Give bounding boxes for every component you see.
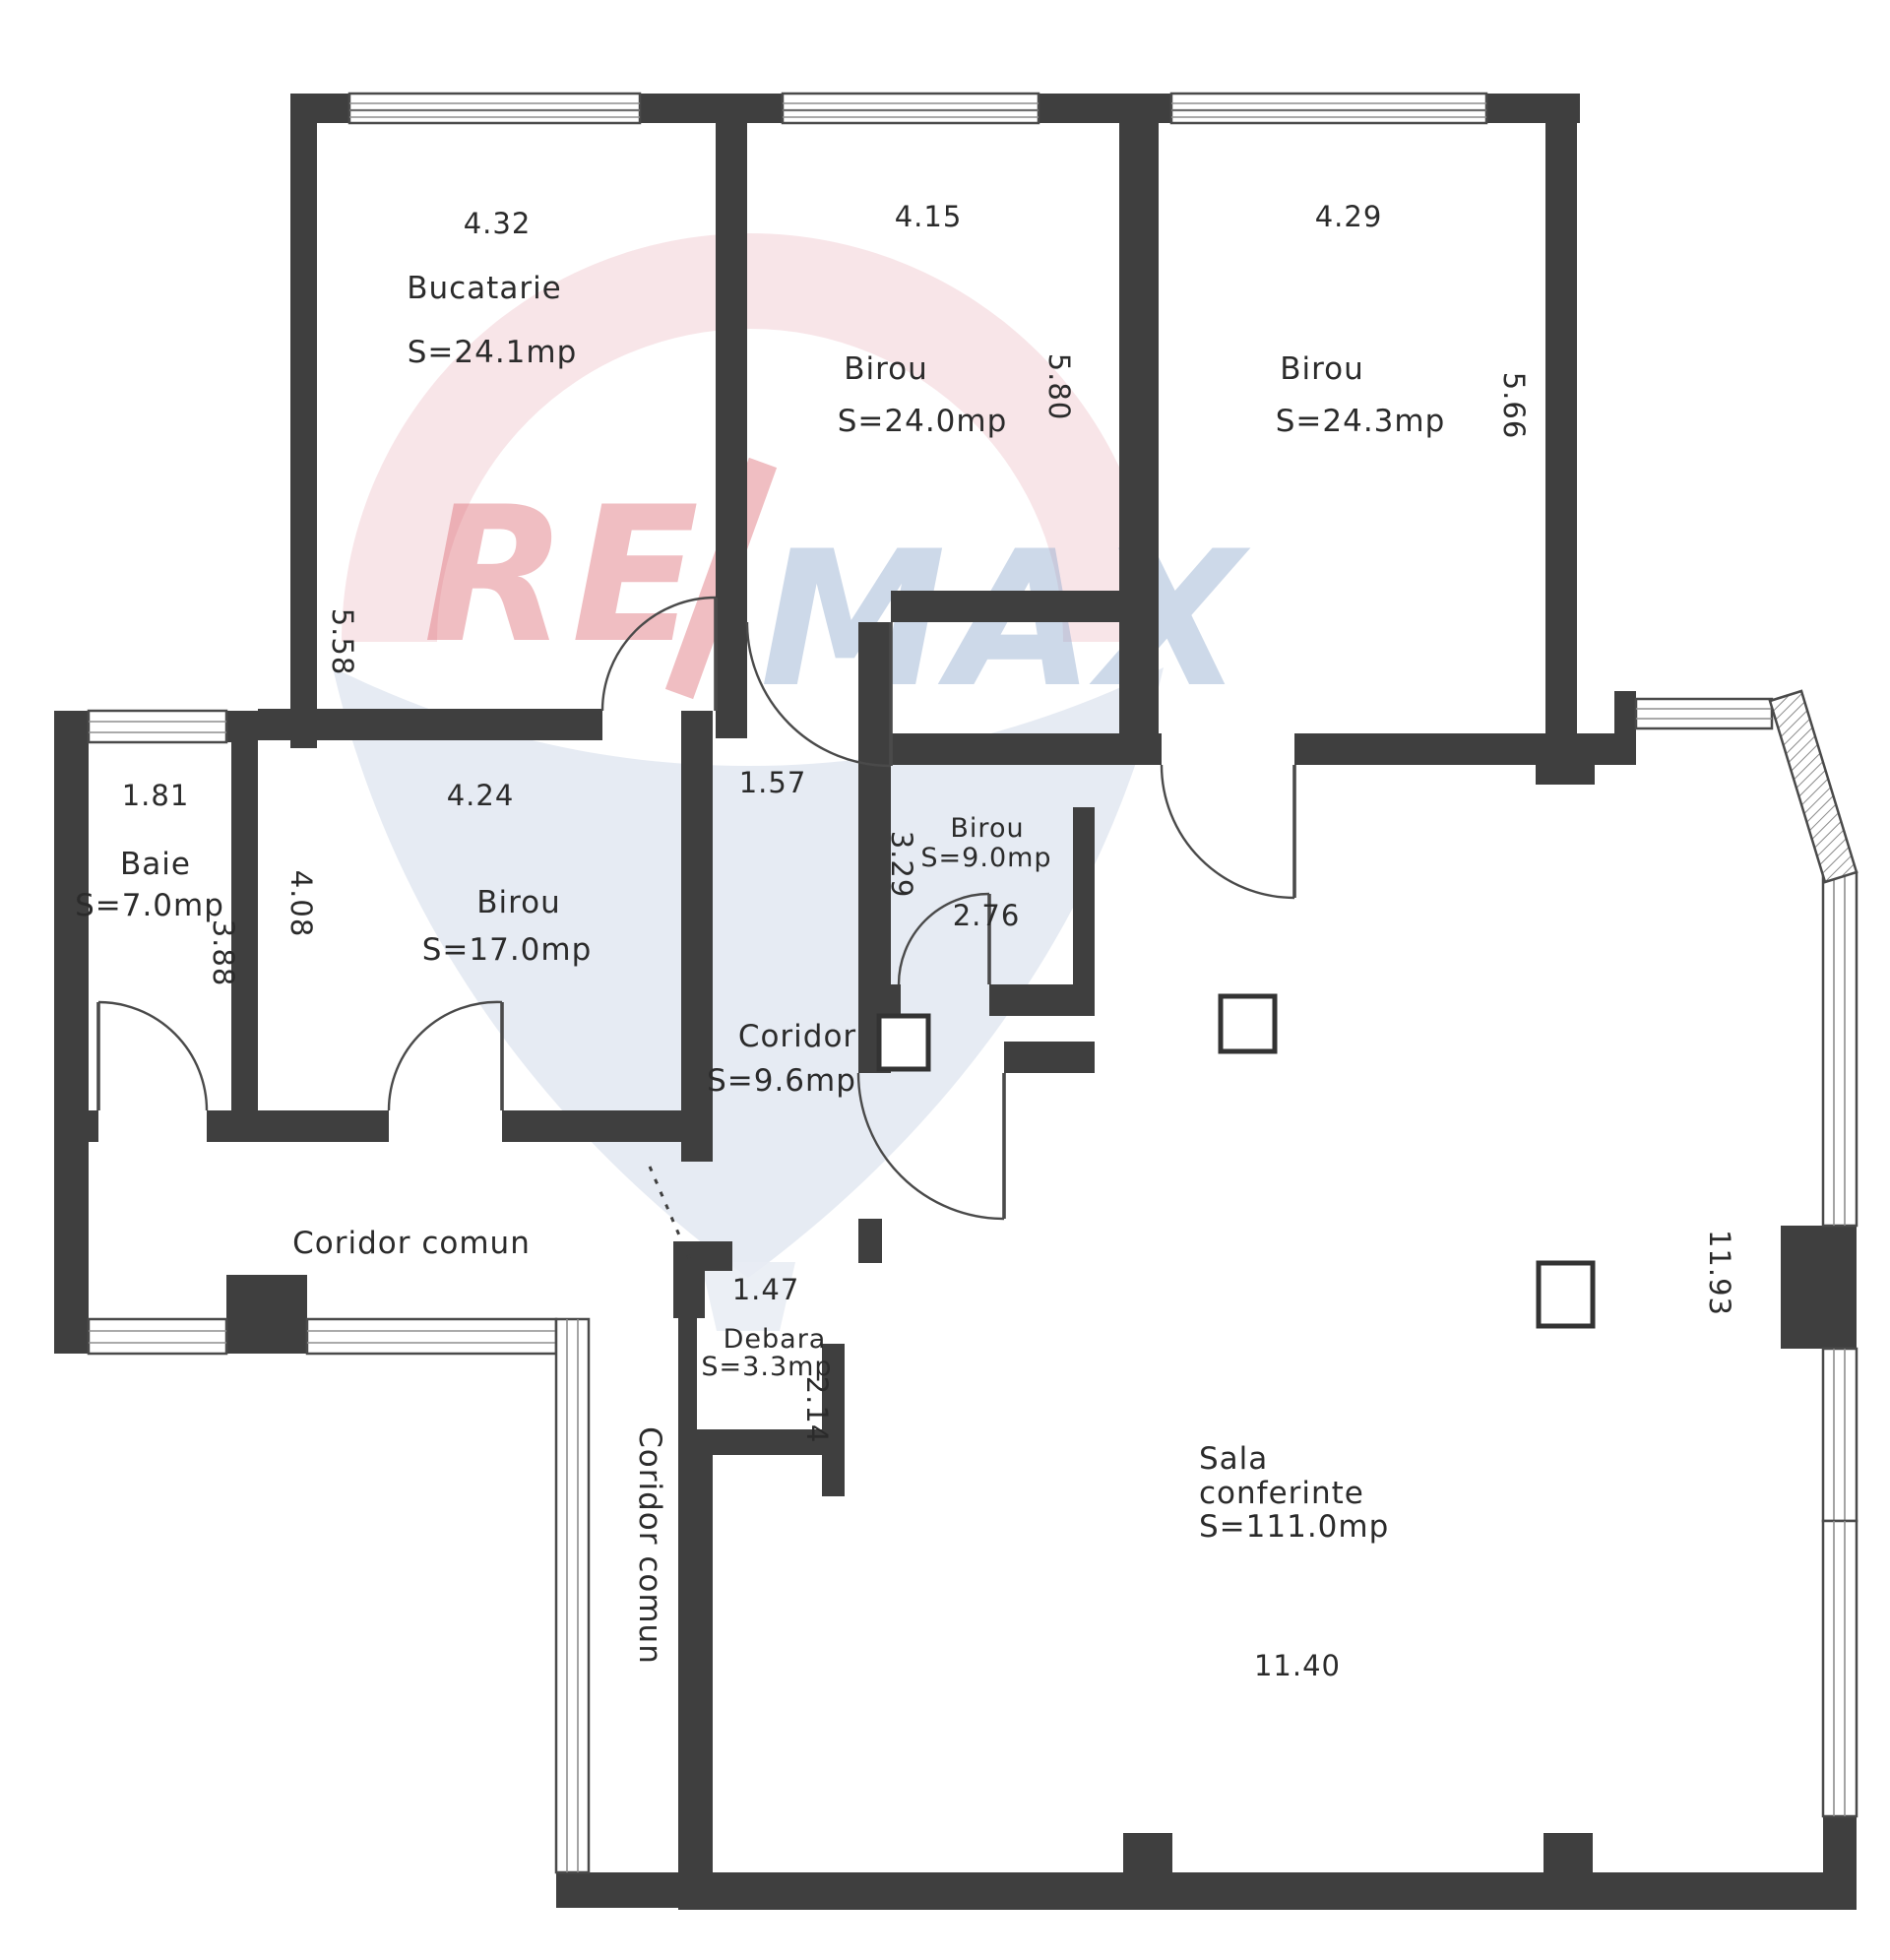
dim-birou-top-right-width: 4.29 [1315,200,1383,233]
room-name-coridor-comun-v: Coridor comun [632,1426,667,1665]
room-name-birou-mid: Birou [476,885,561,920]
dim-baie-width: 1.81 [122,779,190,812]
dim-birou-top-right-height: 5.66 [1497,372,1531,440]
room-area-sala: S=111.0mp [1199,1509,1389,1545]
room-name-sala-line1: Sala [1199,1441,1268,1477]
room-area-coridor: S=9.6mp [707,1063,856,1099]
dim-baie-height: 3.88 [207,919,240,987]
dim-birou-top-mid-height: 5.80 [1042,353,1076,421]
window-baie-top [89,711,226,742]
window-coridor-comun-bottom-right [307,1319,556,1354]
column [1221,996,1275,1051]
room-area-baie: S=7.0mp [75,888,224,923]
dim-sala-height: 11.93 [1703,1230,1736,1316]
dim-birou-top-mid-width: 4.15 [895,200,963,233]
room-area-birou-top-right: S=24.3mp [1276,404,1446,439]
room-name-bucatarie: Bucatarie [407,271,562,306]
window-sala-right-mid [1823,1349,1857,1521]
window-top-birou-right [1171,94,1486,123]
window-sala-topright [1636,699,1772,728]
room-name-coridor-comun-h: Coridor comun [292,1226,531,1261]
window-top-birou-mid [783,94,1039,123]
dim-bucatarie-height: 5.58 [326,608,359,676]
dim-birou-mid-height: 4.08 [284,870,318,938]
room-name-sala-line2: conferinte [1199,1476,1364,1511]
dim-debara-width: 1.47 [732,1273,800,1306]
room-name-debara: Debara [724,1324,827,1355]
door-arc-baie [98,1002,207,1110]
window-sala-right-upper [1823,872,1857,1226]
dim-debara-height: 2.14 [800,1376,834,1444]
room-area-bucatarie: S=24.1mp [408,335,578,370]
room-name-birou-small: Birou [950,813,1024,844]
floor-plan: RE MAX [0,0,1890,1960]
window-top-bucatarie [349,94,640,123]
dim-bucatarie-width: 4.32 [464,207,532,240]
room-area-birou-mid: S=17.0mp [422,932,593,968]
dim-birou-small-width: 2.76 [953,899,1021,932]
window-sala-diagonal [1770,691,1857,882]
dim-sala-width: 11.40 [1254,1649,1341,1682]
room-area-birou-top-mid: S=24.0mp [838,404,1008,439]
window-coridor-comun-bottom-left [89,1319,226,1354]
room-name-baie: Baie [120,847,191,882]
dim-birou-small-height: 3.29 [885,831,918,899]
columns [879,996,1593,1326]
floor-plan-page: RE MAX [0,0,1890,1960]
door-arc-birou-top-right [1162,765,1294,898]
room-area-birou-small: S=9.0mp [920,843,1051,873]
room-name-coridor: Coridor [738,1019,856,1054]
room-name-birou-top-mid: Birou [844,351,928,387]
door-arc-birou-mid [389,1002,502,1110]
remax-text-re: RE [423,467,703,684]
column [879,1016,928,1069]
column [1539,1263,1593,1326]
window-sala-right-lower [1823,1521,1857,1816]
dim-coridor-width: 1.57 [739,766,807,799]
room-name-birou-top-right: Birou [1280,351,1364,387]
window-coridor-vertical [556,1319,589,1872]
dim-birou-mid-width: 4.24 [447,779,515,812]
